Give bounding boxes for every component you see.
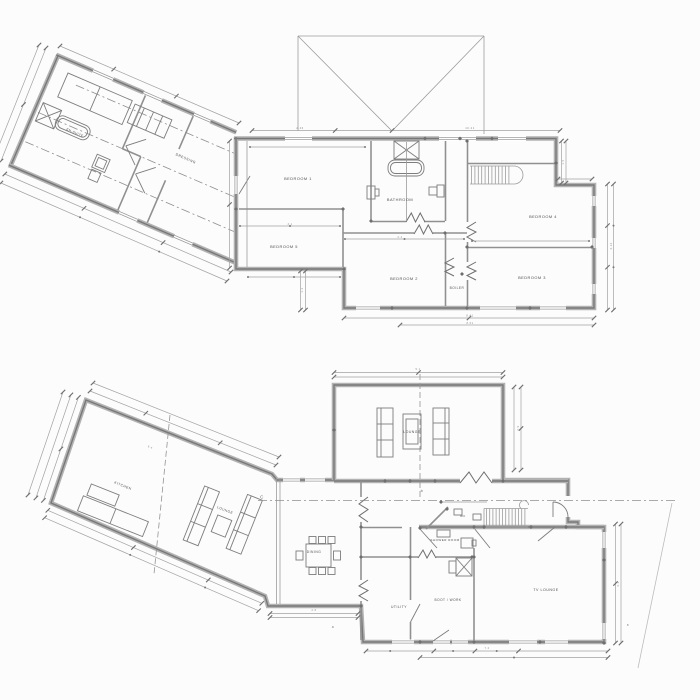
svg-text:2.43: 2.43 <box>296 126 303 130</box>
svg-text:2.4: 2.4 <box>398 236 403 239</box>
svg-text:BATHROOM: BATHROOM <box>387 197 413 202</box>
svg-text:3.4: 3.4 <box>616 581 620 586</box>
svg-text:8.61: 8.61 <box>466 314 473 318</box>
svg-text:8.61: 8.61 <box>466 321 473 325</box>
svg-text:BOILER: BOILER <box>450 286 465 290</box>
svg-text:TV LOUNGE: TV LOUNGE <box>533 588 558 592</box>
svg-text:1.2: 1.2 <box>300 287 304 292</box>
svg-text:1.5: 1.5 <box>561 159 565 164</box>
svg-text:b: b <box>421 488 424 493</box>
svg-text:WC: WC <box>460 514 466 518</box>
svg-text:3.1: 3.1 <box>288 223 293 226</box>
svg-text:BEDROOM 3: BEDROOM 3 <box>518 275 546 280</box>
svg-text:BEDROOM 2: BEDROOM 2 <box>390 276 418 281</box>
svg-text:SHOWER ROOM: SHOWER ROOM <box>430 538 459 542</box>
svg-text:10.21: 10.21 <box>465 126 475 130</box>
svg-text:5.1: 5.1 <box>415 367 420 371</box>
svg-text:a: a <box>332 625 334 629</box>
svg-text:BEDROOM 4: BEDROOM 4 <box>529 214 557 219</box>
svg-text:8: 8 <box>627 623 629 627</box>
svg-text:LOUNGE: LOUNGE <box>403 430 421 434</box>
svg-text:BEDROOM 1: BEDROOM 1 <box>284 176 312 181</box>
svg-text:2.8: 2.8 <box>312 609 317 612</box>
svg-text:UTILITY: UTILITY <box>391 605 407 609</box>
svg-text:BOOT / WORK: BOOT / WORK <box>434 598 461 602</box>
svg-text:DINING: DINING <box>307 550 322 554</box>
svg-text:2.9: 2.9 <box>516 425 520 430</box>
svg-text:7.2: 7.2 <box>484 646 489 650</box>
svg-text:4.12: 4.12 <box>609 242 613 249</box>
svg-text:BEDROOM 5: BEDROOM 5 <box>270 244 298 249</box>
svg-text:C: C <box>260 495 264 500</box>
